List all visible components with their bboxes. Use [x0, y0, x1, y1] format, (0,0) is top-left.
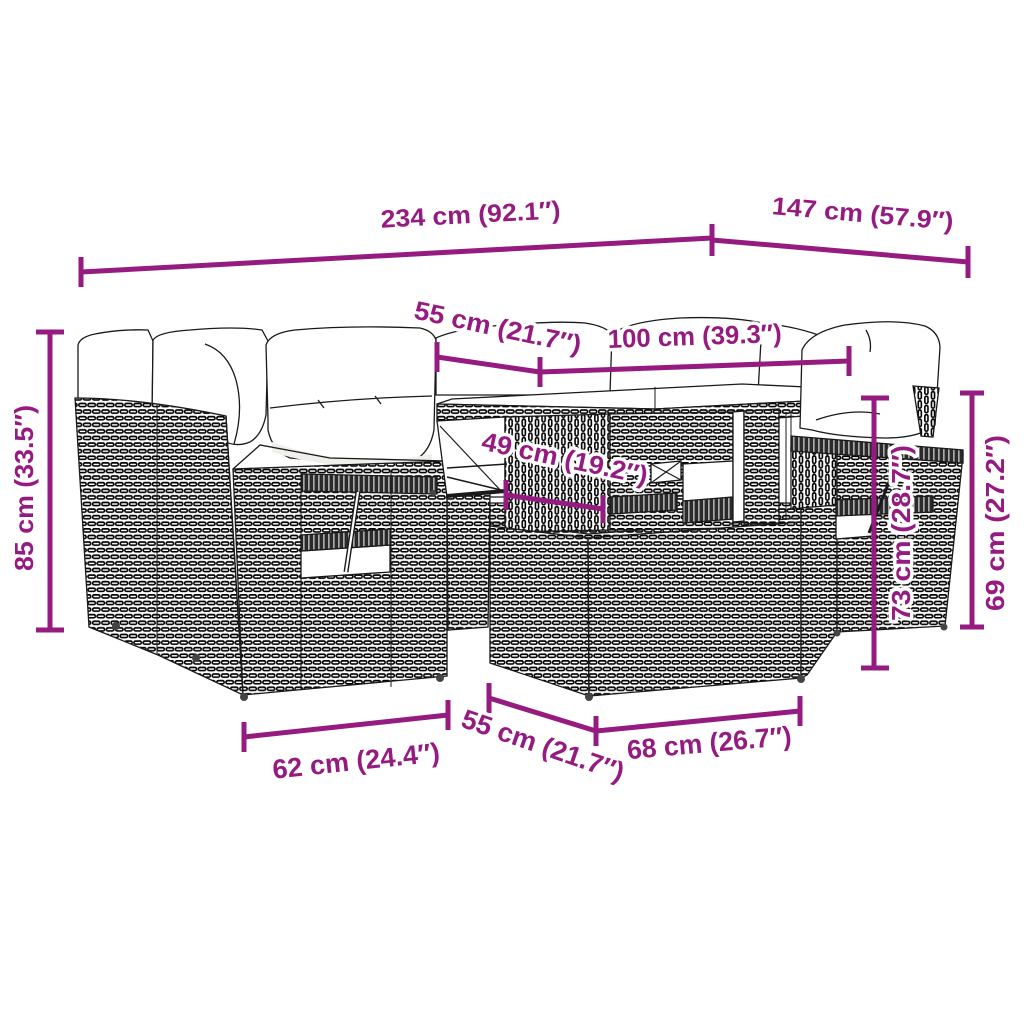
svg-text:100 cm (39.3″): 100 cm (39.3″) — [607, 318, 782, 354]
svg-text:73 cm (28.7″): 73 cm (28.7″) — [886, 445, 916, 621]
svg-text:69 cm (27.2″): 69 cm (27.2″) — [980, 435, 1010, 611]
svg-text:85 cm (33.5″): 85 cm (33.5″) — [9, 405, 39, 571]
